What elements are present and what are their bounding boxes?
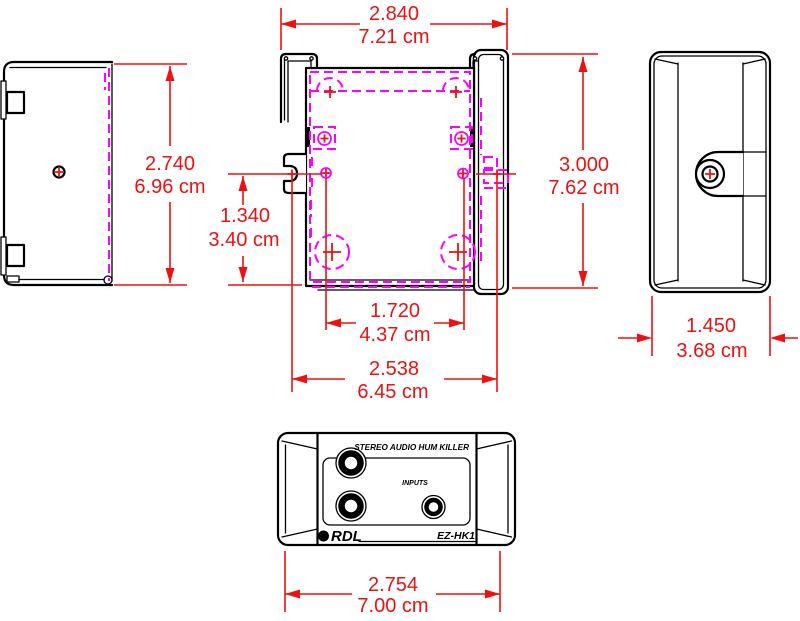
dim-front-width-cm: 7.00 cm xyxy=(357,595,428,617)
dimension-side-depth: 1.450 3.68 cm xyxy=(618,296,798,362)
dim-top-width-cm: 7.21 cm xyxy=(358,26,429,48)
dimension-right-height: 3.000 7.62 cm xyxy=(512,54,620,288)
dim-plate-width-cm: 6.45 cm xyxy=(357,381,428,403)
mini-jack xyxy=(422,496,445,519)
technical-drawing: 2.740 6.96 cm xyxy=(0,0,800,621)
right-side-view xyxy=(650,52,770,292)
dim-top-width-in: 2.840 xyxy=(369,3,419,25)
top-view xyxy=(281,50,508,294)
dim-slot-offset-cm: 3.40 cm xyxy=(208,229,279,251)
dim-hole-spacing-in: 1.720 xyxy=(370,300,420,322)
brand-label: RDL xyxy=(331,528,362,545)
left-side-view xyxy=(1,62,112,285)
side-slot-lower xyxy=(1,237,6,275)
dim-side-depth-cm: 3.68 cm xyxy=(676,340,747,362)
dim-side-depth-in: 1.450 xyxy=(686,315,736,337)
dim-front-width-in: 2.754 xyxy=(368,574,418,596)
dimension-top-width: 2.840 7.21 cm xyxy=(281,3,507,50)
side-connector-lower xyxy=(7,245,24,266)
dim-hole-spacing-cm: 4.37 cm xyxy=(359,324,430,346)
product-label: STEREO AUDIO HUM KILLER xyxy=(354,443,469,452)
dim-right-height-in: 3.000 xyxy=(559,154,609,176)
side-slot-upper xyxy=(1,81,6,119)
dim-plate-width-in: 2.538 xyxy=(369,358,419,380)
dim-right-height-cm: 7.62 cm xyxy=(548,177,619,199)
dimension-plate-width: 2.538 6.45 cm xyxy=(292,358,497,403)
brand-dot-icon xyxy=(318,531,329,542)
dimension-left-height: 2.740 6.96 cm xyxy=(114,64,206,285)
dim-slot-offset-in: 1.340 xyxy=(220,205,270,227)
model-label: EZ-HK1 xyxy=(437,530,475,542)
dimension-hole-spacing: 1.720 4.37 cm xyxy=(326,300,464,346)
side-connector-upper xyxy=(7,92,24,113)
dim-left-height-in: 2.740 xyxy=(145,153,195,175)
rca-jack-top xyxy=(336,448,366,478)
dimension-front-width: 2.754 7.00 cm xyxy=(285,551,500,617)
mechanical-drawing-page: 2.740 6.96 cm xyxy=(0,0,800,621)
inputs-label: INPUTS xyxy=(402,480,428,487)
front-view: STEREO AUDIO HUM KILLER INPUTS RDL EZ-HK… xyxy=(278,433,515,545)
dim-left-height-cm: 6.96 cm xyxy=(134,176,205,198)
rca-jack-bottom xyxy=(336,491,366,521)
